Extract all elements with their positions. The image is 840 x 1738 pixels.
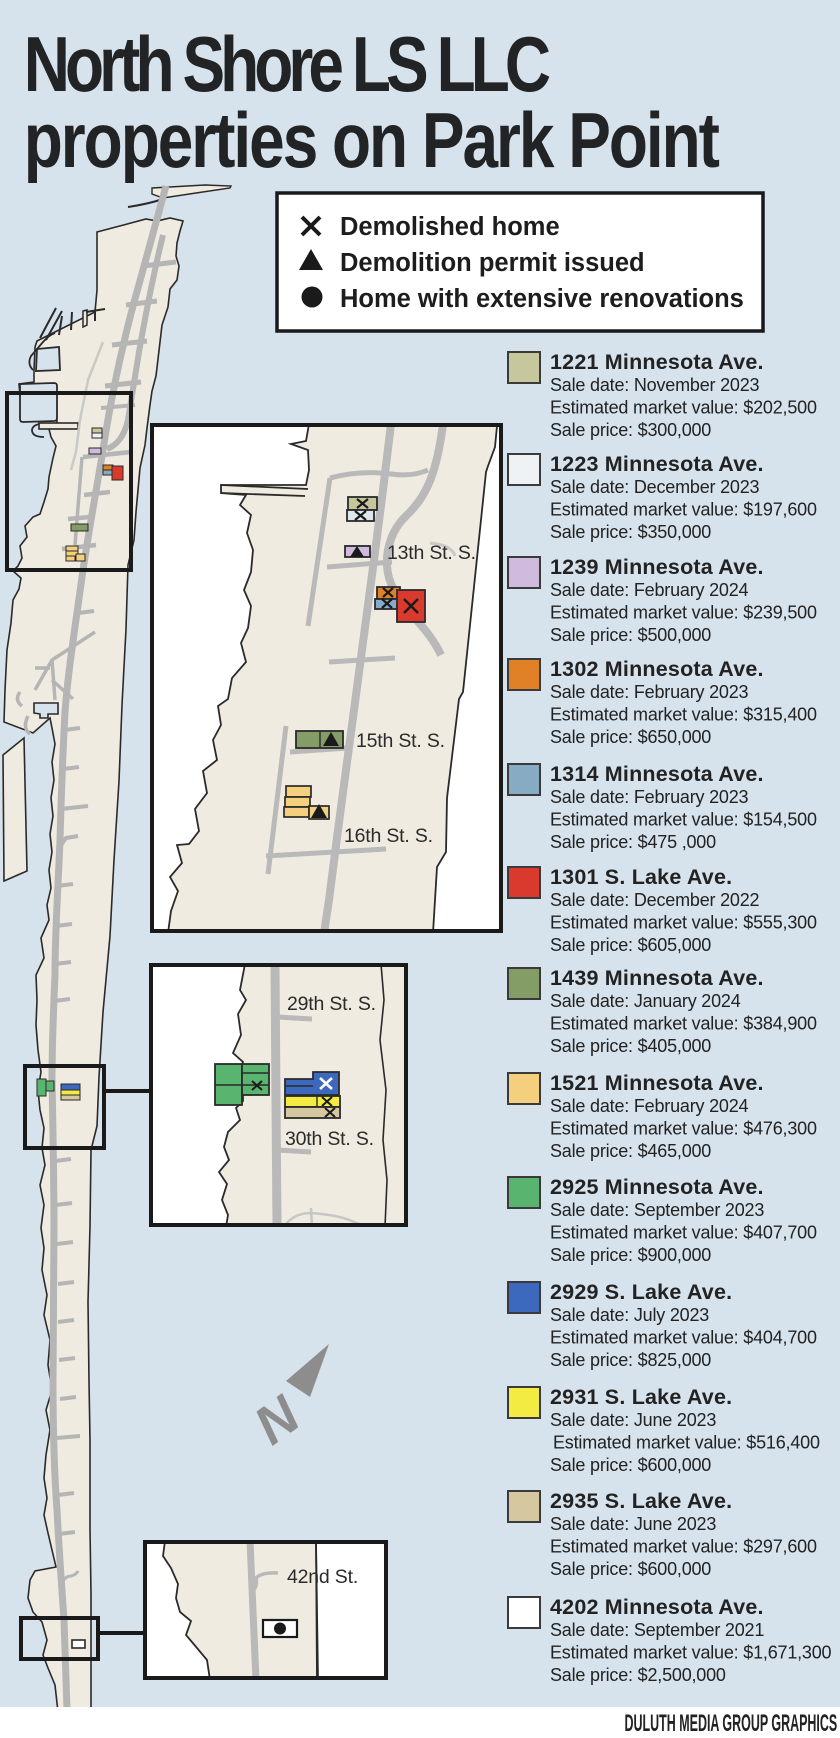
svg-text:Sale date: June 2023: Sale date: June 2023 xyxy=(550,1410,716,1430)
svg-text:Estimated market value: $154,5: Estimated market value: $154,500 xyxy=(550,810,817,830)
svg-text:Sale date: July 2023: Sale date: July 2023 xyxy=(550,1305,709,1325)
svg-text:Estimated market value: $315,4: Estimated market value: $315,400 xyxy=(550,705,817,725)
svg-text:Sale price: $300,000: Sale price: $300,000 xyxy=(550,420,711,440)
svg-text:Demolition permit issued: Demolition permit issued xyxy=(340,249,645,277)
svg-text:Sale date: December 2022: Sale date: December 2022 xyxy=(550,890,760,910)
svg-text:Sale price: $900,000: Sale price: $900,000 xyxy=(550,1245,711,1265)
svg-text:2931 S. Lake Ave.: 2931 S. Lake Ave. xyxy=(550,1385,732,1409)
svg-text:1223 Minnesota Ave.: 1223 Minnesota Ave. xyxy=(550,452,764,476)
svg-text:Sale date: June 2023: Sale date: June 2023 xyxy=(550,1514,716,1534)
svg-text:Estimated market value: $239,5: Estimated market value: $239,500 xyxy=(550,603,817,623)
svg-text:1314 Minnesota Ave.: 1314 Minnesota Ave. xyxy=(550,762,764,786)
svg-text:Sale price: $2,500,000: Sale price: $2,500,000 xyxy=(550,1665,726,1685)
svg-text:Sale date: September 2023: Sale date: September 2023 xyxy=(550,1200,764,1220)
svg-text:Sale date: February 2024: Sale date: February 2024 xyxy=(550,580,749,600)
svg-text:Sale price: $350,000: Sale price: $350,000 xyxy=(550,522,711,542)
svg-text:Estimated market value: $1,671: Estimated market value: $1,671,300 xyxy=(550,1643,832,1663)
svg-text:1301 S. Lake Ave.: 1301 S. Lake Ave. xyxy=(550,865,732,889)
svg-text:Estimated market value: $404,7: Estimated market value: $404,700 xyxy=(550,1328,817,1348)
svg-text:2925 Minnesota Ave.: 2925 Minnesota Ave. xyxy=(550,1175,764,1199)
svg-text:1239 Minnesota Ave.: 1239 Minnesota Ave. xyxy=(550,555,764,579)
svg-text:Sale price: $475 ,000: Sale price: $475 ,000 xyxy=(550,832,716,852)
svg-text:Sale date: December 2023: Sale date: December 2023 xyxy=(550,477,760,497)
svg-text:North Shore LS LLC: North Shore LS LLC xyxy=(24,21,551,108)
svg-text:Estimated market value: $197,6: Estimated market value: $197,600 xyxy=(550,500,817,520)
svg-text:Estimated market value: $476,3: Estimated market value: $476,300 xyxy=(550,1119,817,1139)
svg-text:Sale price: $465,000: Sale price: $465,000 xyxy=(550,1141,711,1161)
svg-text:Sale price: $405,000: Sale price: $405,000 xyxy=(550,1036,711,1056)
svg-text:13th St. S.: 13th St. S. xyxy=(387,542,476,564)
svg-text:Estimated market value: $384,9: Estimated market value: $384,900 xyxy=(550,1014,817,1034)
svg-text:15th St. S.: 15th St. S. xyxy=(356,730,445,752)
svg-text:1439 Minnesota Ave.: 1439 Minnesota Ave. xyxy=(550,966,764,990)
svg-text:2935 S. Lake Ave.: 2935 S. Lake Ave. xyxy=(550,1489,732,1513)
svg-text:Sale price: $825,000: Sale price: $825,000 xyxy=(550,1350,711,1370)
svg-text:properties on Park Point: properties on Park Point xyxy=(24,97,720,184)
svg-text:Estimated market value: $202,5: Estimated market value: $202,500 xyxy=(550,398,817,418)
svg-text:Sale date: February 2023: Sale date: February 2023 xyxy=(550,682,749,702)
svg-text:2929 S. Lake Ave.: 2929 S. Lake Ave. xyxy=(550,1280,732,1304)
svg-text:1302 Minnesota Ave.: 1302 Minnesota Ave. xyxy=(550,657,764,681)
svg-text:Sale price: $600,000: Sale price: $600,000 xyxy=(550,1455,711,1475)
svg-text:DULUTH MEDIA GROUP GRAPHICS: DULUTH MEDIA GROUP GRAPHICS xyxy=(625,1711,838,1737)
svg-text:Estimated market value: $407,7: Estimated market value: $407,700 xyxy=(550,1223,817,1243)
svg-text:Sale date: November 2023: Sale date: November 2023 xyxy=(550,375,760,395)
svg-text:30th St. S.: 30th St. S. xyxy=(285,1128,374,1150)
svg-text:4202 Minnesota Ave.: 4202 Minnesota Ave. xyxy=(550,1595,764,1619)
svg-text:Estimated market value: $516,4: Estimated market value: $516,400 xyxy=(553,1433,820,1453)
svg-text:Estimated market value: $555,3: Estimated market value: $555,300 xyxy=(550,913,817,933)
svg-text:Estimated market value: $297,6: Estimated market value: $297,600 xyxy=(550,1537,817,1557)
svg-text:Sale price: $650,000: Sale price: $650,000 xyxy=(550,727,711,747)
svg-text:42nd St.: 42nd St. xyxy=(287,1566,358,1588)
svg-text:Sale price: $500,000: Sale price: $500,000 xyxy=(550,625,711,645)
svg-text:Home with extensive renovation: Home with extensive renovations xyxy=(340,285,744,313)
svg-text:Sale date: September 2021: Sale date: September 2021 xyxy=(550,1620,764,1640)
svg-text:Demolished home: Demolished home xyxy=(340,213,560,241)
svg-text:Sale date: February 2023: Sale date: February 2023 xyxy=(550,787,749,807)
svg-text:1521 Minnesota Ave.: 1521 Minnesota Ave. xyxy=(550,1071,764,1095)
svg-text:Sale date: February 2024: Sale date: February 2024 xyxy=(550,1096,749,1116)
svg-text:16th St. S.: 16th St. S. xyxy=(344,825,433,847)
svg-text:1221 Minnesota Ave.: 1221 Minnesota Ave. xyxy=(550,350,764,374)
svg-text:Sale price: $605,000: Sale price: $605,000 xyxy=(550,935,711,955)
svg-text:29th St. S.: 29th St. S. xyxy=(287,993,376,1015)
svg-text:Sale date: January 2024: Sale date: January 2024 xyxy=(550,991,741,1011)
svg-text:Sale price: $600,000: Sale price: $600,000 xyxy=(550,1559,711,1579)
